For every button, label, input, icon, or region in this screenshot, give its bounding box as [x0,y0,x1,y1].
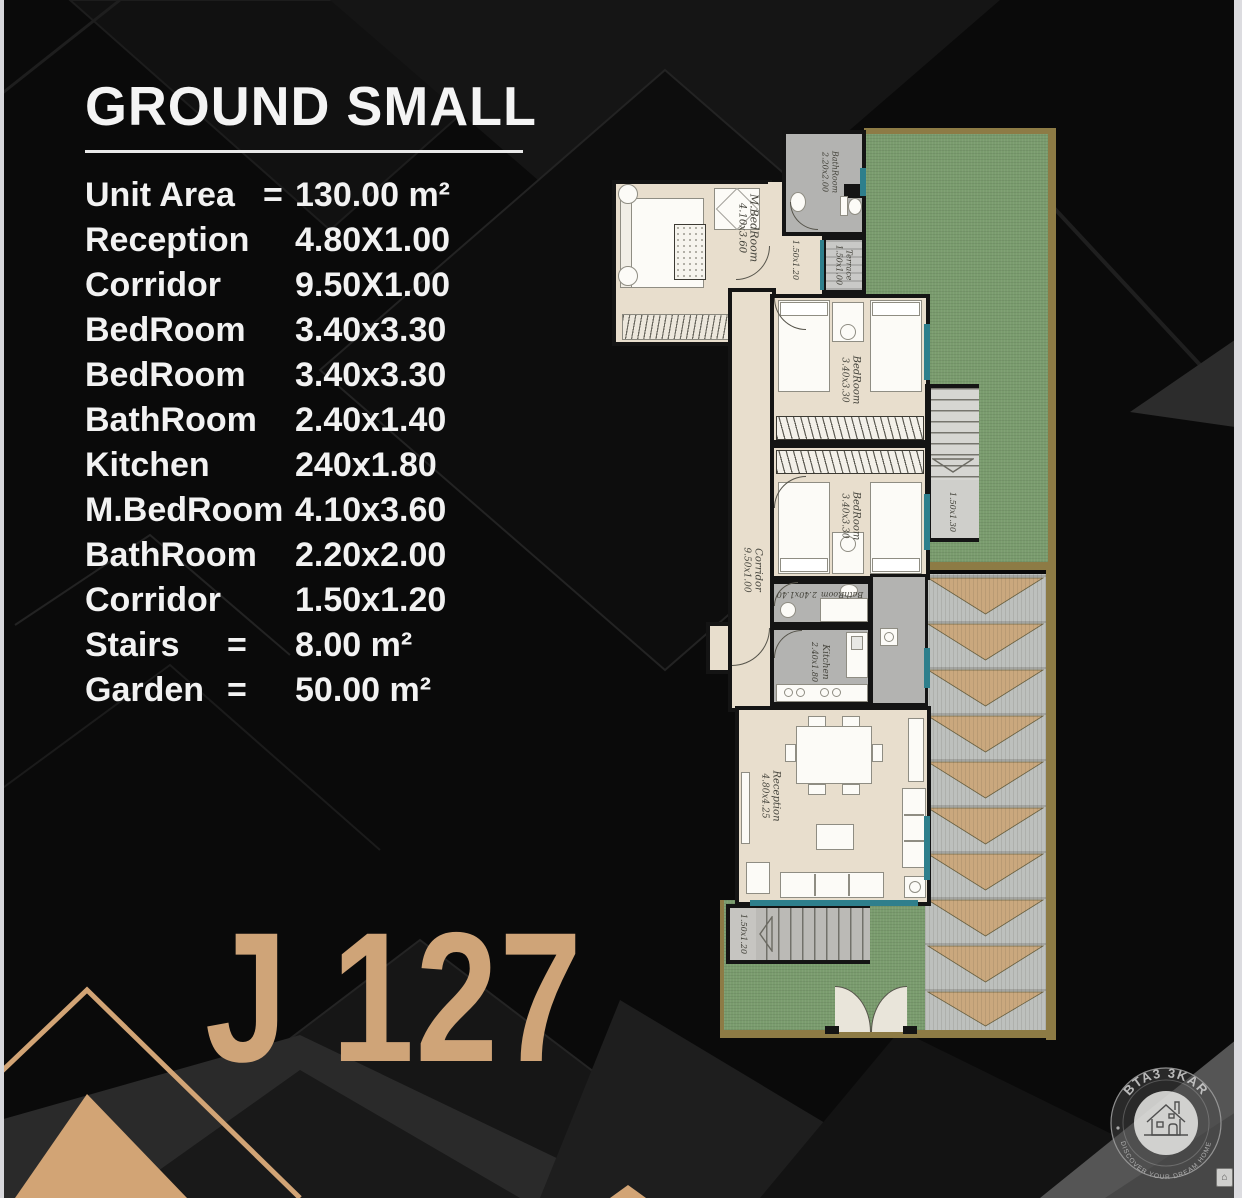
room-label-corridor-small: 1.50x1.20 [790,240,800,280]
deck-chevron-pattern [925,574,1046,1030]
spec-row-bathroom-2: BathRoom 2.20x2.00 [85,536,555,581]
spec-row-stairs: Stairs = 8.00 m² [85,626,555,671]
spec-value: 4.10x3.60 [295,491,446,530]
window-strip [924,648,930,688]
stairs-arrow-icon [932,458,974,474]
window-strip [924,324,930,380]
sofa-icon [902,788,926,868]
stairs-arrow-icon [758,916,774,952]
spec-label: M.BedRoom [85,491,283,530]
pillow-icon [780,558,828,572]
spec-value: 1.50x1.20 [295,581,446,620]
spec-row-corridor: Corridor 9.50X1.00 [85,266,555,311]
sofa-cushion-line [904,840,924,842]
room-label-corridor: Corridor 9.50x1.00 [741,547,764,592]
room-label-bedroom-1: BedRoom 3.40x3.30 [839,356,862,405]
sofa-cushion-line [814,874,816,896]
lamp-icon [840,324,856,340]
chair-icon [808,716,826,727]
pillow-icon [872,558,920,572]
spec-value: 9.50X1.00 [295,266,450,305]
spec-row-unit-area: Unit Area = 130.00 m² [85,176,555,221]
spec-label: Garden [85,671,204,710]
spec-row-bathroom-1: BathRoom 2.40x1.40 [85,401,555,446]
cabinet-icon [908,718,924,782]
spec-value: 2.20x2.00 [295,536,446,575]
window-strip [924,494,930,550]
bathtub-icon [820,598,868,622]
spec-label: Reception [85,221,249,260]
wall-stub [825,1026,839,1034]
sofa-cushion-line [904,814,924,816]
room-label-bathroom-2: BathRoom 2.40x1.40 [777,589,863,599]
utility-area [870,574,928,706]
sofa-icon [780,872,884,898]
washer-drum-icon [884,632,894,642]
spec-label: Unit Area [85,176,235,215]
spec-label: BathRoom [85,536,257,575]
spec-label: Kitchen [85,446,210,485]
room-label-kitchen: Kitchen 2.40x1.80 [810,642,830,682]
logo-dot [1116,1126,1119,1129]
spec-row-garden: Garden = 50.00 m² [85,671,555,716]
room-label-bathroom-top: BathRoom 2.20x2.00 [820,151,839,193]
spec-row-bedroom-1: BedRoom 3.40x3.30 [85,311,555,356]
chair-icon [808,784,826,795]
left-edge-strip [0,0,4,1198]
spec-label: BedRoom [85,356,246,395]
kitchen-sink-icon [851,636,863,650]
unit-code: J 127 [205,906,583,1091]
spec-value: 4.80X1.00 [295,221,450,260]
nightstand-icon [618,266,638,286]
chair-icon [785,744,796,762]
spec-value: 130.00 m² [295,176,450,215]
spec-row-kitchen: Kitchen 240x1.80 [85,446,555,491]
window-strip [860,168,866,196]
stove-burner-icon [832,688,841,697]
spec-label: Corridor [85,581,221,620]
spec-value: 2.40x1.40 [295,401,446,440]
room-label-bedroom-2: BedRoom 3.40x3.30 [839,492,862,541]
stove-burner-icon [820,688,829,697]
room-label-terrace: Terrace 1.50x1.00 [834,245,853,285]
dining-table-icon [796,726,872,784]
spec-row-corridor-2: Corridor 1.50x1.20 [85,581,555,626]
spec-label: BathRoom [85,401,257,440]
right-edge-strip [1234,0,1242,1198]
spec-equals: = [227,671,247,710]
room-label-stairs-bottom: 1.50x1.20 [738,914,748,954]
window-strip [924,816,930,880]
toilet-icon [848,198,862,215]
watermark-icon: ⌂ [1216,1168,1233,1187]
spec-equals: = [227,626,247,665]
pergola-deck [925,574,1046,1030]
spec-value: 8.00 m² [295,626,412,665]
closet-icon [776,450,924,474]
armchair-icon [746,862,770,894]
spec-value: 50.00 m² [295,671,431,710]
room-label-master-bedroom: M.BedRoom 4.10x3.60 [735,194,760,262]
room-label-reception: Reception 4.80x4.25 [759,770,782,821]
tv-console-icon [741,772,750,844]
chair-icon [842,716,860,727]
spec-equals: = [263,176,283,215]
spec-row-bedroom-2: BedRoom 3.40x3.30 [85,356,555,401]
spec-value: 3.40x3.30 [295,356,446,395]
spec-value: 240x1.80 [295,446,437,485]
window-strip [750,900,918,906]
lamp-icon [909,881,921,893]
brochure-page: GROUND SMALL Unit Area = 130.00 m² Recep… [0,0,1242,1198]
sofa-cushion-line [848,874,850,896]
nightstand-icon [618,184,638,204]
window-strip [820,240,824,290]
floor-plan: M.BedRoom 4.10x3.60 1.50x1.20 BathRoom 2… [608,128,1060,1063]
toilet-tank-icon [840,196,848,216]
room-label-stairs-side: 1.50x1.30 [947,492,957,532]
spec-label: Corridor [85,266,221,305]
spec-row-master-bedroom: M.BedRoom 4.10x3.60 [85,491,555,536]
spec-value: 3.40x3.30 [295,311,446,350]
spec-label: Stairs [85,626,180,665]
chair-icon [872,744,883,762]
coffee-table-icon [816,824,854,850]
spec-label: BedRoom [85,311,246,350]
spec-list: Unit Area = 130.00 m² Reception 4.80X1.0… [85,176,555,716]
bed-blanket-icon [674,224,706,280]
pillow-icon [872,302,920,316]
brand-logo: BTA3 3KAR DISCOVER YOUR DREAM HOME [1108,1065,1224,1181]
title-underline [85,150,523,153]
page-title: GROUND SMALL [85,74,537,138]
stove-burner-icon [784,688,793,697]
stove-burner-icon [796,688,805,697]
logo-inner-circle [1134,1091,1198,1155]
chair-icon [842,784,860,795]
spec-row-reception: Reception 4.80X1.00 [85,221,555,266]
closet-icon [776,416,924,440]
entry-nook [706,622,732,674]
wall-stub [903,1026,917,1034]
